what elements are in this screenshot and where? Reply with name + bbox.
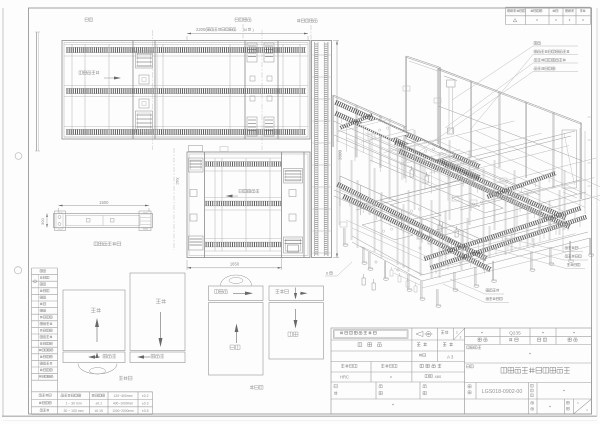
- svg-text:Q235: Q235: [509, 331, 521, 336]
- svg-text:±0.1: ±0.1: [95, 402, 102, 406]
- svg-text:±0.2: ±0.2: [142, 394, 149, 398]
- svg-text:±0.5: ±0.5: [142, 409, 149, 413]
- svg-text:1 ~ 30 mm: 1 ~ 30 mm: [65, 402, 81, 406]
- svg-text:LGS018-0902-00: LGS018-0902-00: [482, 389, 523, 395]
- svg-text:150(: 150(: [176, 177, 180, 185]
- svg-text:480: 480: [435, 374, 442, 379]
- svg-text:±0.3: ±0.3: [142, 402, 149, 406]
- svg-text:6: 6: [326, 272, 328, 276]
- svg-text:HRC: HRC: [340, 375, 349, 380]
- svg-text:A 3: A 3: [447, 355, 454, 360]
- svg-text:1: 1: [456, 331, 458, 335]
- svg-text:54: 54: [243, 28, 247, 32]
- svg-text:2: 2: [460, 336, 462, 340]
- svg-text:400~1000mm: 400~1000mm: [113, 402, 134, 406]
- svg-text:30 ~ 100 mm: 30 ~ 100 mm: [64, 409, 84, 413]
- svg-text:120~400mm: 120~400mm: [114, 394, 133, 398]
- svg-text:): ): [253, 28, 254, 32]
- svg-text:1650: 1650: [230, 261, 240, 266]
- svg-text:300: 300: [40, 218, 45, 225]
- svg-text:1000~2000mm: 1000~2000mm: [112, 409, 134, 413]
- svg-text:2200(: 2200(: [196, 27, 207, 32]
- svg-text:1500: 1500: [99, 200, 109, 205]
- svg-text:±0.15: ±0.15: [95, 409, 103, 413]
